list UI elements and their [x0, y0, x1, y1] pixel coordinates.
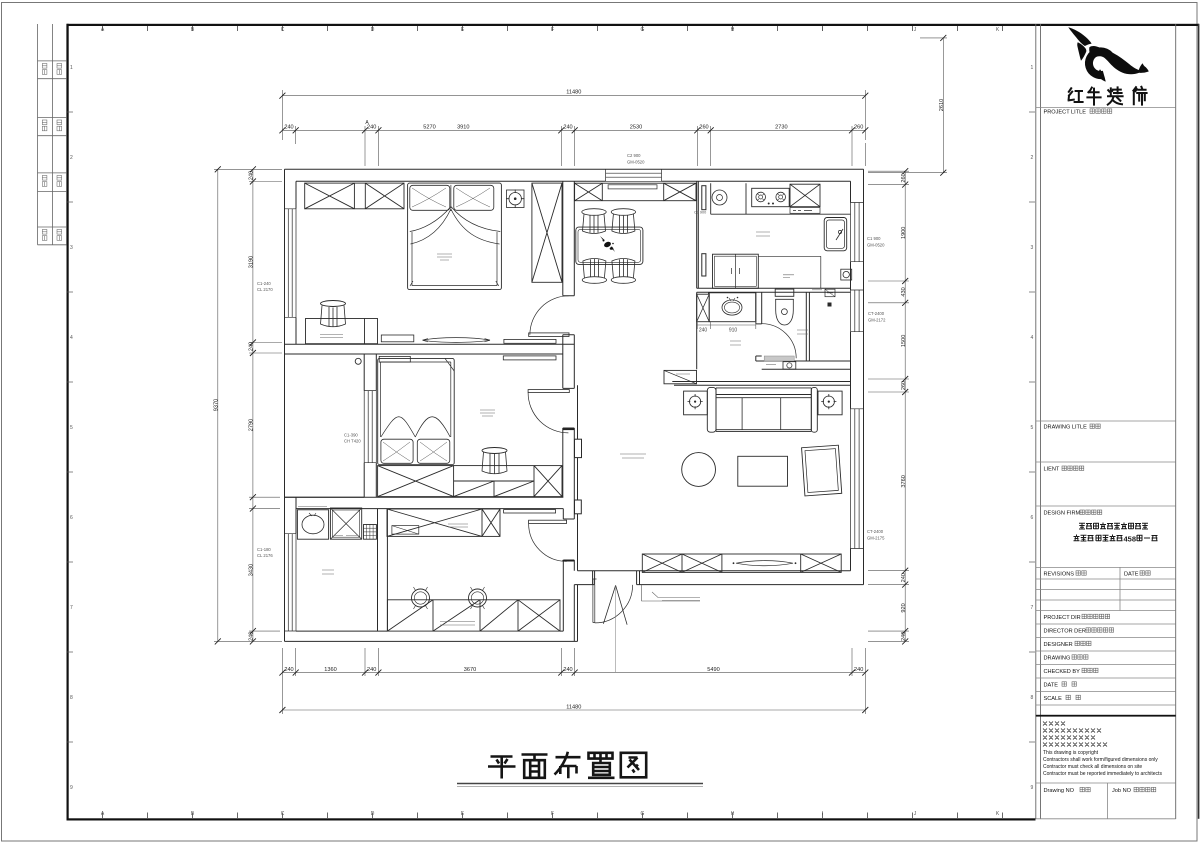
svg-text:910: 910 [729, 328, 738, 334]
svg-text:260: 260 [901, 381, 907, 390]
svg-text:5270: 5270 [423, 125, 435, 131]
svg-text:2: 2 [70, 155, 73, 161]
svg-text:260: 260 [854, 125, 863, 131]
svg-text:C1 900: C1 900 [867, 236, 881, 241]
svg-text:CT-2400: CT-2400 [867, 529, 884, 534]
svg-text:SCALE: SCALE [1044, 696, 1063, 702]
svg-text:CH T420: CH T420 [344, 439, 361, 444]
svg-text:2790: 2790 [249, 419, 255, 431]
svg-text:260: 260 [699, 125, 708, 131]
svg-text:240: 240 [249, 171, 255, 180]
svg-text:240: 240 [284, 125, 293, 131]
svg-text:1900: 1900 [901, 227, 907, 239]
svg-text:920: 920 [901, 603, 907, 612]
svg-text:CL 2170: CL 2170 [257, 287, 273, 292]
svg-text:REVISIONS: REVISIONS [1044, 571, 1075, 577]
svg-text:2530: 2530 [630, 125, 642, 131]
svg-text:5: 5 [70, 425, 73, 431]
svg-text:PROJECT DIR: PROJECT DIR [1044, 615, 1081, 621]
svg-text:240: 240 [284, 667, 293, 673]
svg-text:11480: 11480 [566, 704, 581, 710]
svg-text:2610: 2610 [939, 99, 945, 111]
svg-text:3190: 3190 [249, 256, 255, 268]
svg-text:7: 7 [70, 605, 73, 611]
svg-text:GM-0520: GM-0520 [627, 160, 645, 165]
svg-text:1500: 1500 [901, 335, 907, 347]
svg-text:240: 240 [249, 342, 255, 351]
svg-text:240: 240 [367, 667, 376, 673]
svg-text:1: 1 [1031, 65, 1034, 71]
svg-text:Contractors shall work form/fi: Contractors shall work form/figured dime… [1043, 757, 1158, 763]
svg-text:7: 7 [1031, 605, 1034, 611]
svg-text:240: 240 [699, 328, 708, 334]
svg-text:240: 240 [563, 667, 572, 673]
svg-text:3: 3 [1031, 245, 1034, 251]
svg-text:CL 2176: CL 2176 [257, 553, 273, 558]
svg-text:5490: 5490 [707, 667, 719, 673]
svg-text:PROJECT LITLE: PROJECT LITLE [1044, 110, 1087, 116]
svg-text:Job NO: Job NO [1112, 788, 1132, 794]
svg-text:1360: 1360 [324, 667, 336, 673]
svg-text:C2 900: C2 900 [627, 153, 641, 158]
svg-text:DIRECTOR DER: DIRECTOR DER [1044, 629, 1086, 635]
svg-text:3760: 3760 [901, 475, 907, 487]
svg-text:Drawing NO: Drawing NO [1044, 788, 1075, 794]
svg-text:GM-2175: GM-2175 [867, 536, 885, 541]
svg-text:240: 240 [901, 632, 907, 641]
svg-text:C1-180: C1-180 [257, 547, 271, 552]
svg-text:LIENT: LIENT [1044, 467, 1060, 473]
svg-text:9: 9 [70, 785, 73, 791]
svg-text:9370: 9370 [214, 399, 220, 411]
svg-text:Contractor must check all dime: Contractor must check all dimensions on … [1043, 764, 1142, 770]
svg-text:260: 260 [901, 173, 907, 182]
svg-text:4: 4 [1031, 335, 1034, 341]
svg-text:9: 9 [1031, 785, 1034, 791]
svg-text:240: 240 [901, 573, 907, 582]
svg-text:C1-240: C1-240 [257, 281, 271, 286]
svg-text:DESIGN FIRM: DESIGN FIRM [1044, 511, 1081, 517]
svg-text:5: 5 [1031, 425, 1034, 431]
svg-text:This drawing is copyright: This drawing is copyright [1043, 750, 1099, 756]
svg-text:C1-390: C1-390 [344, 433, 358, 438]
svg-text:3910: 3910 [457, 125, 469, 131]
svg-text:DRAWING: DRAWING [1044, 656, 1071, 662]
svg-text:6: 6 [1031, 515, 1034, 521]
svg-text:6: 6 [70, 515, 73, 521]
svg-text:3: 3 [70, 245, 73, 251]
svg-text:11480: 11480 [566, 90, 581, 96]
svg-text:8: 8 [1031, 695, 1034, 701]
svg-text:2: 2 [1031, 155, 1034, 161]
svg-text:3430: 3430 [249, 564, 255, 576]
svg-text:GM-2172: GM-2172 [868, 318, 886, 323]
svg-text:240: 240 [854, 667, 863, 673]
svg-text:3670: 3670 [464, 667, 476, 673]
svg-text:CHECKED BY: CHECKED BY [1044, 669, 1081, 675]
svg-text:GM-0520: GM-0520 [867, 243, 885, 248]
svg-text:C2 900: C2 900 [694, 211, 706, 215]
svg-text:DATE: DATE [1124, 571, 1139, 577]
svg-text:2730: 2730 [775, 125, 787, 131]
svg-text:DRAWING LITLE: DRAWING LITLE [1044, 425, 1088, 431]
svg-text:8: 8 [70, 695, 73, 701]
svg-text:430: 430 [901, 287, 907, 296]
svg-text:Contractor must be reported im: Contractor must be reported immediately … [1043, 771, 1162, 777]
svg-text:240: 240 [563, 125, 572, 131]
svg-text:4: 4 [70, 335, 73, 341]
svg-text:DESIGNER: DESIGNER [1044, 642, 1073, 648]
svg-text:240: 240 [249, 632, 255, 641]
svg-text:CT-2400: CT-2400 [868, 311, 885, 316]
svg-text:1: 1 [70, 65, 73, 71]
svg-text:DATE: DATE [1044, 683, 1059, 689]
svg-text:458: 458 [1124, 535, 1137, 544]
